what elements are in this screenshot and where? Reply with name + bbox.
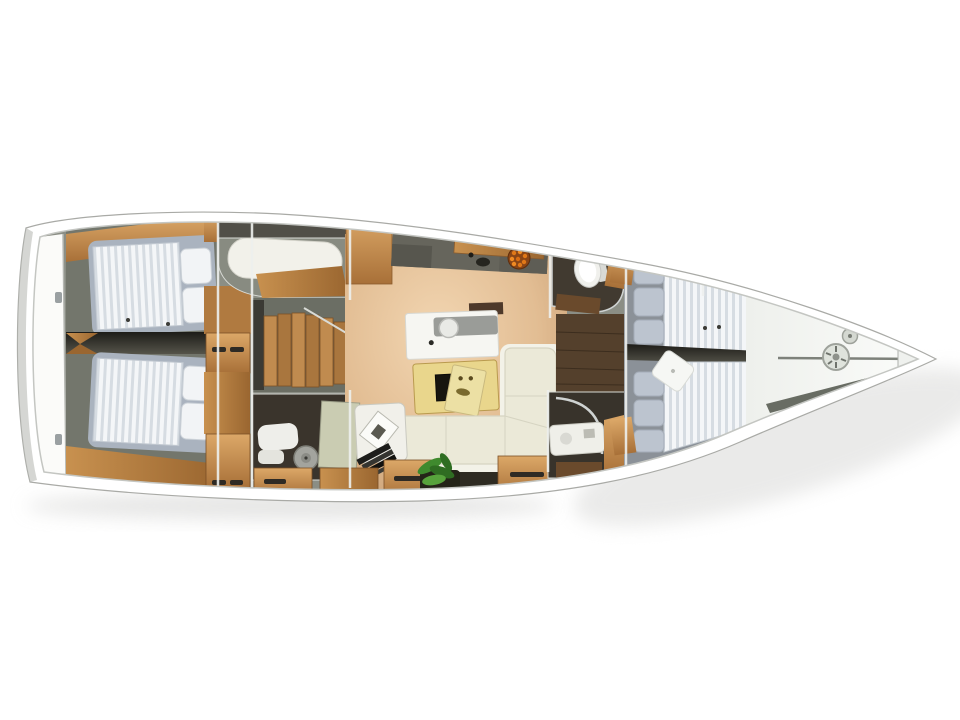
towel-roll	[258, 450, 284, 464]
companionway-stairs	[252, 298, 350, 392]
transom-latch	[55, 292, 62, 303]
pillow-grey	[634, 288, 664, 316]
aft-cabin-port-bed	[88, 235, 219, 336]
drawer-handle	[394, 476, 424, 481]
stair-treads	[264, 313, 346, 387]
chart-stool	[439, 318, 459, 338]
yacht-floorplan-stage	[0, 0, 960, 720]
aft-cabin-starboard-bed	[88, 352, 219, 453]
aft-cabin-divider	[66, 332, 218, 354]
locker-drawer	[206, 434, 250, 488]
vanity	[549, 422, 605, 456]
seat-panel	[318, 401, 359, 469]
pillow-grey	[634, 430, 664, 452]
yacht-floorplan	[0, 0, 960, 720]
faucet	[469, 253, 474, 258]
towel-roll	[257, 422, 299, 451]
transom-latch	[55, 434, 62, 445]
aft-cabins	[66, 215, 218, 492]
drawer-handle	[264, 479, 286, 484]
corridor	[556, 314, 624, 394]
drawer-handle	[230, 480, 243, 485]
locker-drawer	[206, 333, 250, 373]
galley-sink	[476, 258, 490, 267]
pillow	[180, 248, 212, 285]
pillow-grey	[634, 400, 664, 426]
pillow-grey	[634, 320, 664, 344]
technical-room	[218, 218, 352, 298]
salon-table	[413, 360, 500, 420]
drawer-handle	[510, 472, 544, 477]
drawer-handle	[230, 347, 244, 352]
